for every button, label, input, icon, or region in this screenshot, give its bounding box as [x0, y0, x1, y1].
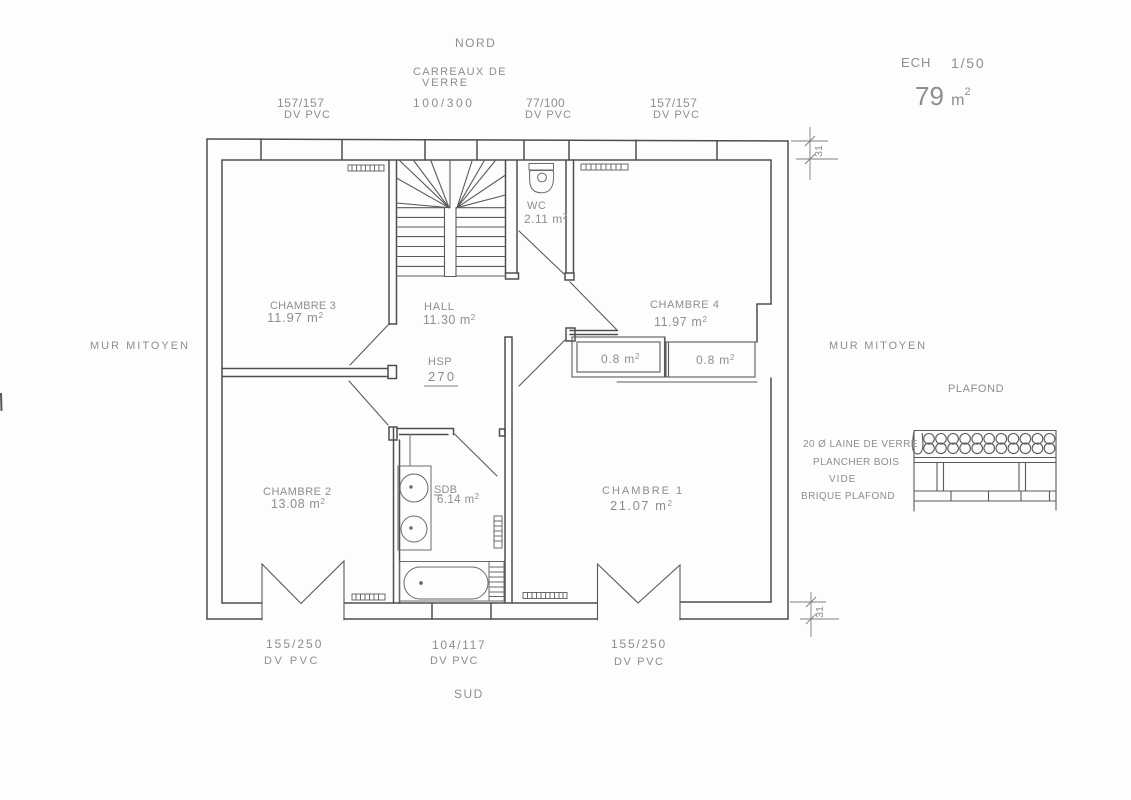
- svg-text:1/50: 1/50: [951, 55, 985, 71]
- svg-text:WC: WC: [527, 200, 546, 212]
- svg-text:100/300: 100/300: [413, 96, 475, 110]
- svg-text:DV PVC: DV PVC: [525, 109, 572, 121]
- svg-text:PLAFOND: PLAFOND: [948, 383, 1004, 395]
- svg-text:13.08 m2: 13.08 m2: [271, 497, 325, 511]
- svg-text:11.30 m2: 11.30 m2: [423, 313, 476, 327]
- svg-text:20 Ø LAINE DE VERRE: 20 Ø LAINE DE VERRE: [803, 439, 918, 450]
- svg-text:11.97 m2: 11.97 m2: [267, 310, 324, 325]
- svg-text:CHAMBRE 4: CHAMBRE 4: [650, 299, 720, 311]
- svg-text:ECH: ECH: [901, 55, 931, 70]
- svg-text:0.8 m2: 0.8 m2: [601, 352, 640, 366]
- svg-text:11.97 m2: 11.97 m2: [654, 315, 708, 329]
- svg-text:2.11 m2: 2.11 m2: [524, 212, 568, 226]
- svg-text:DV PVC: DV PVC: [284, 109, 331, 121]
- svg-text:155/250: 155/250: [266, 637, 323, 651]
- svg-text:HALL: HALL: [424, 301, 455, 313]
- svg-text:BRIQUE PLAFOND: BRIQUE PLAFOND: [801, 491, 895, 502]
- svg-text:21.07 m2: 21.07 m2: [610, 498, 673, 513]
- svg-text:NORD: NORD: [455, 36, 496, 50]
- svg-text:VERRE: VERRE: [422, 77, 469, 89]
- svg-text:MUR MITOYEN: MUR MITOYEN: [90, 340, 190, 352]
- svg-text:DV PVC: DV PVC: [430, 655, 479, 667]
- svg-text:SUD: SUD: [454, 687, 484, 701]
- svg-text:PLANCHER BOIS: PLANCHER BOIS: [813, 457, 899, 468]
- svg-text:77/100: 77/100: [526, 96, 565, 110]
- svg-text:DV PVC: DV PVC: [614, 656, 665, 668]
- svg-text:CHAMBRE 1: CHAMBRE 1: [602, 485, 684, 497]
- svg-text:31: 31: [813, 145, 825, 157]
- svg-text:104/117: 104/117: [432, 638, 486, 652]
- svg-text:MUR MITOYEN: MUR MITOYEN: [829, 340, 927, 352]
- svg-text:VIDE: VIDE: [829, 474, 856, 485]
- svg-text:DV PVC: DV PVC: [653, 109, 700, 121]
- svg-text:DV PVC: DV PVC: [264, 655, 320, 667]
- svg-text:155/250: 155/250: [611, 637, 667, 651]
- svg-text:157/157: 157/157: [650, 96, 698, 110]
- svg-text:31: 31: [814, 606, 826, 618]
- svg-text:HSP: HSP: [428, 356, 452, 368]
- svg-text:0.8 m2: 0.8 m2: [696, 353, 735, 367]
- svg-text:270: 270: [428, 369, 456, 384]
- svg-text:6.14 m2: 6.14 m2: [437, 492, 480, 506]
- svg-text:157/157: 157/157: [277, 96, 325, 110]
